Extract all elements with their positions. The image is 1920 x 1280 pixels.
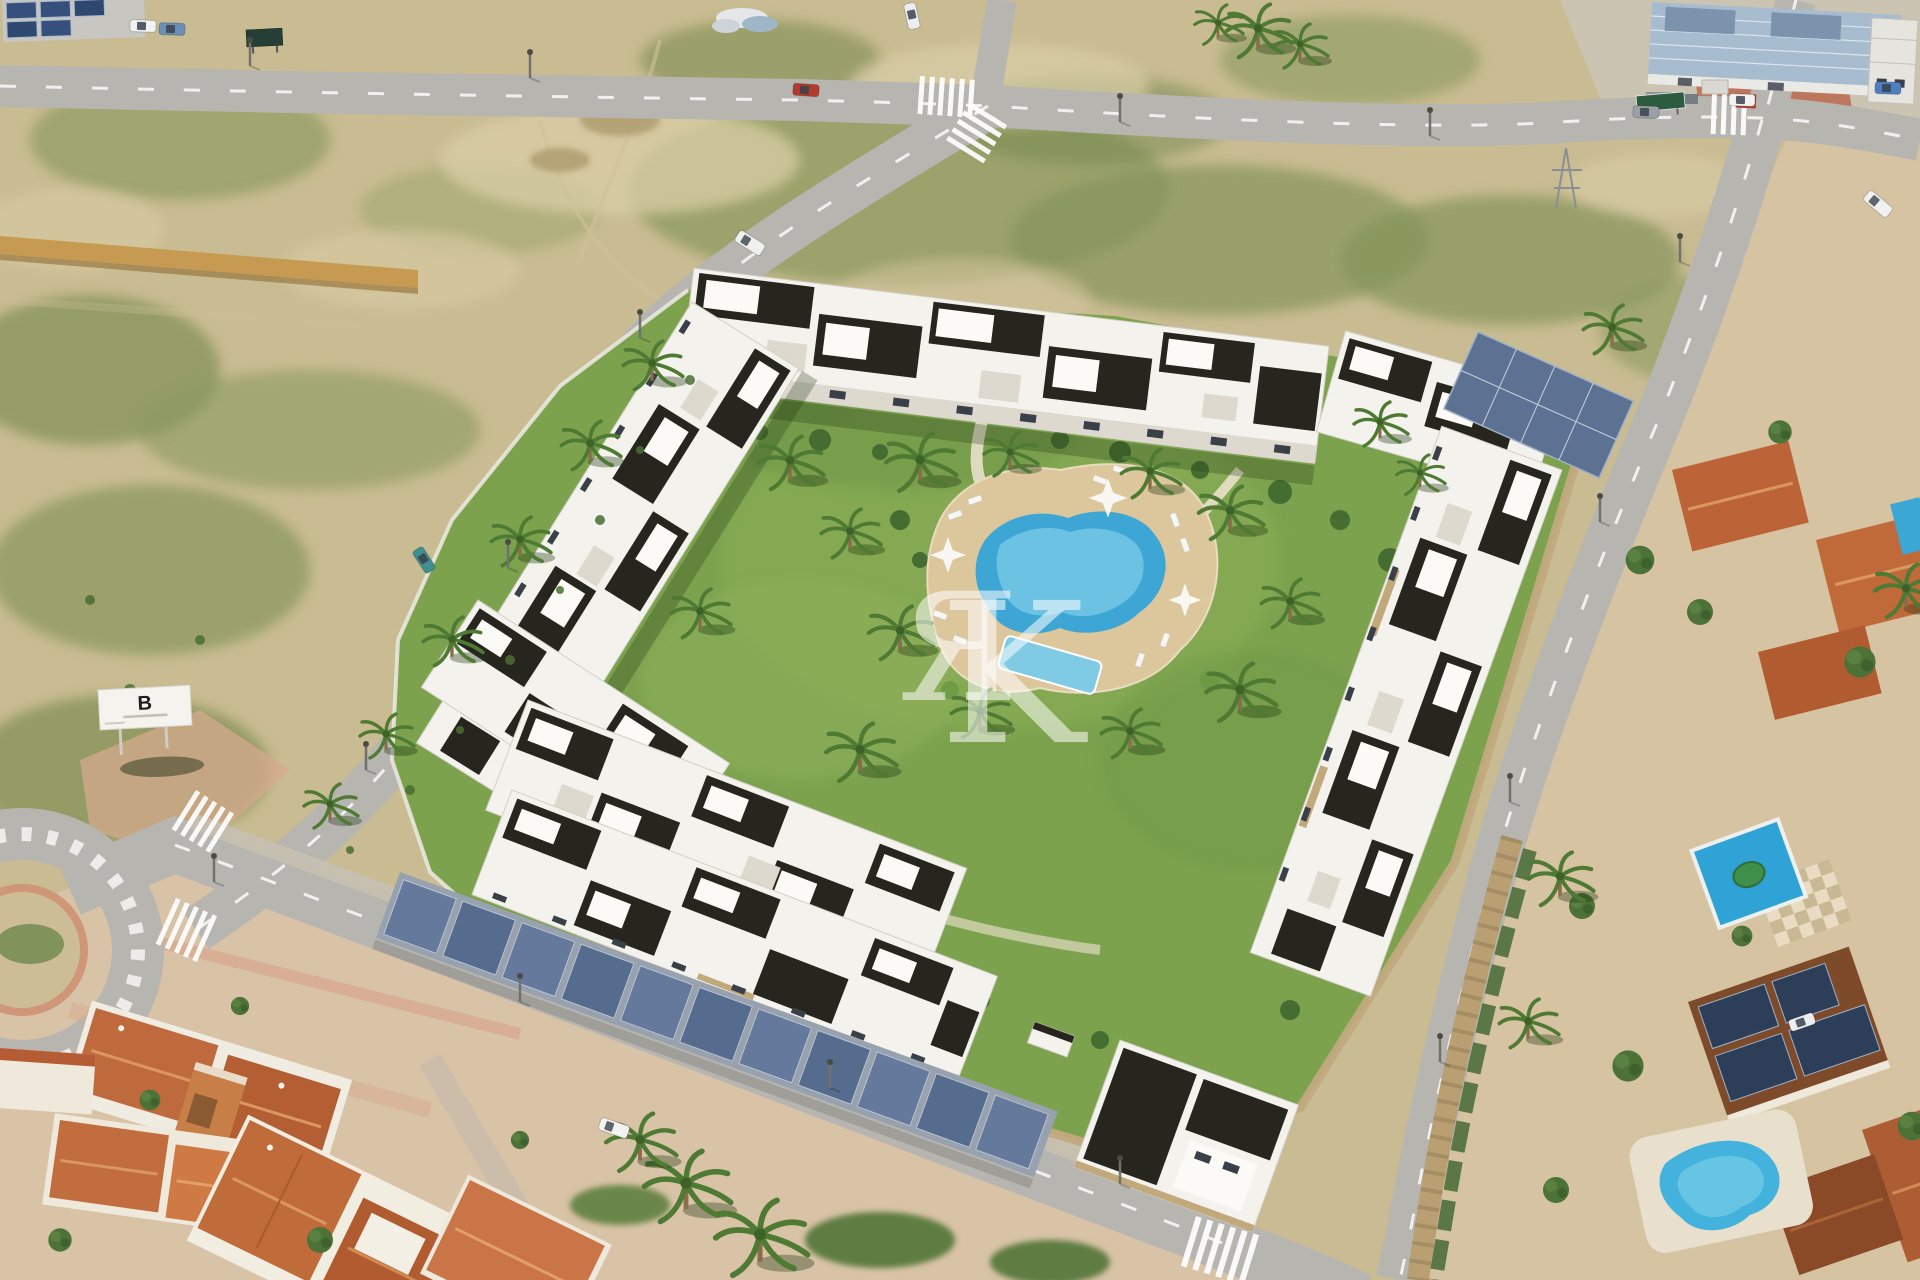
billboard-logo: B [137,692,153,715]
warehouse [1648,2,1902,97]
house-strip-left-edge [0,1048,96,1115]
car-blue-topleft [159,23,185,36]
car-blue-highway [1875,82,1901,95]
car-white-highway [1729,94,1755,107]
car-gray-highway [1633,106,1659,119]
car-red-intersection [793,83,820,97]
car-white-topleft [130,20,156,33]
watermark-k: K [939,561,1088,788]
road-top-branch [984,0,1002,108]
aerial-photo: B Я K [0,0,1920,1280]
solar-roof-topleft-corner [2,0,145,42]
